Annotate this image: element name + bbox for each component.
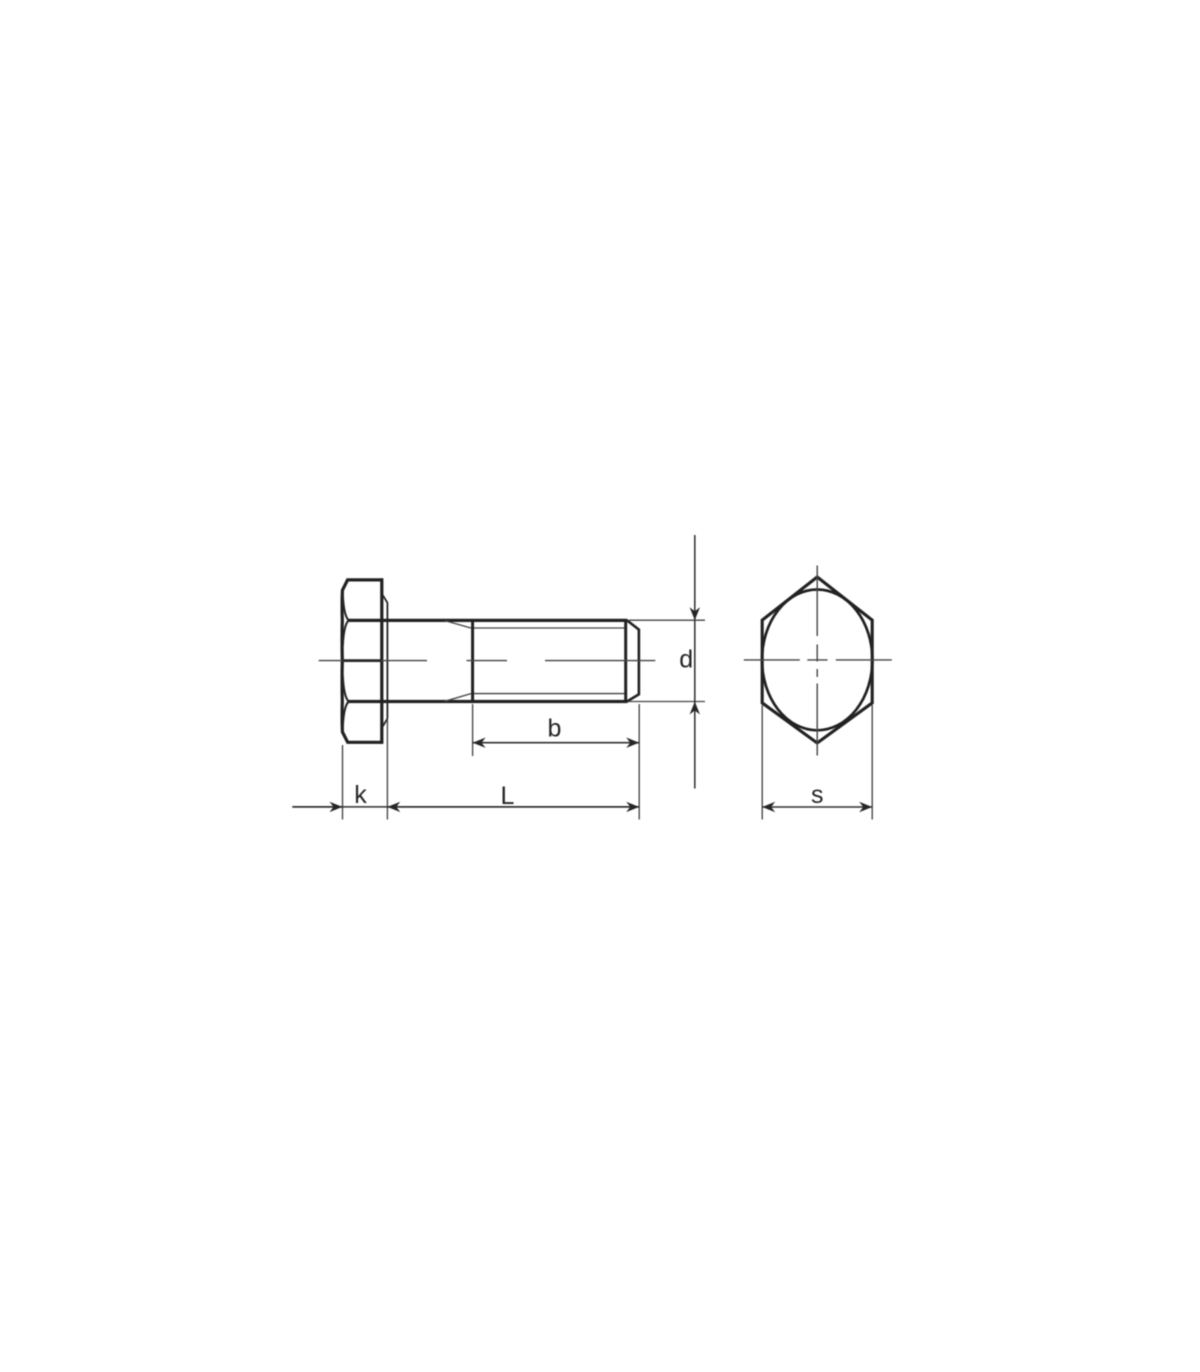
svg-text:d: d	[679, 645, 693, 673]
svg-text:b: b	[548, 715, 562, 743]
svg-text:k: k	[354, 781, 367, 809]
svg-text:L: L	[501, 782, 515, 810]
svg-text:s: s	[811, 781, 824, 809]
